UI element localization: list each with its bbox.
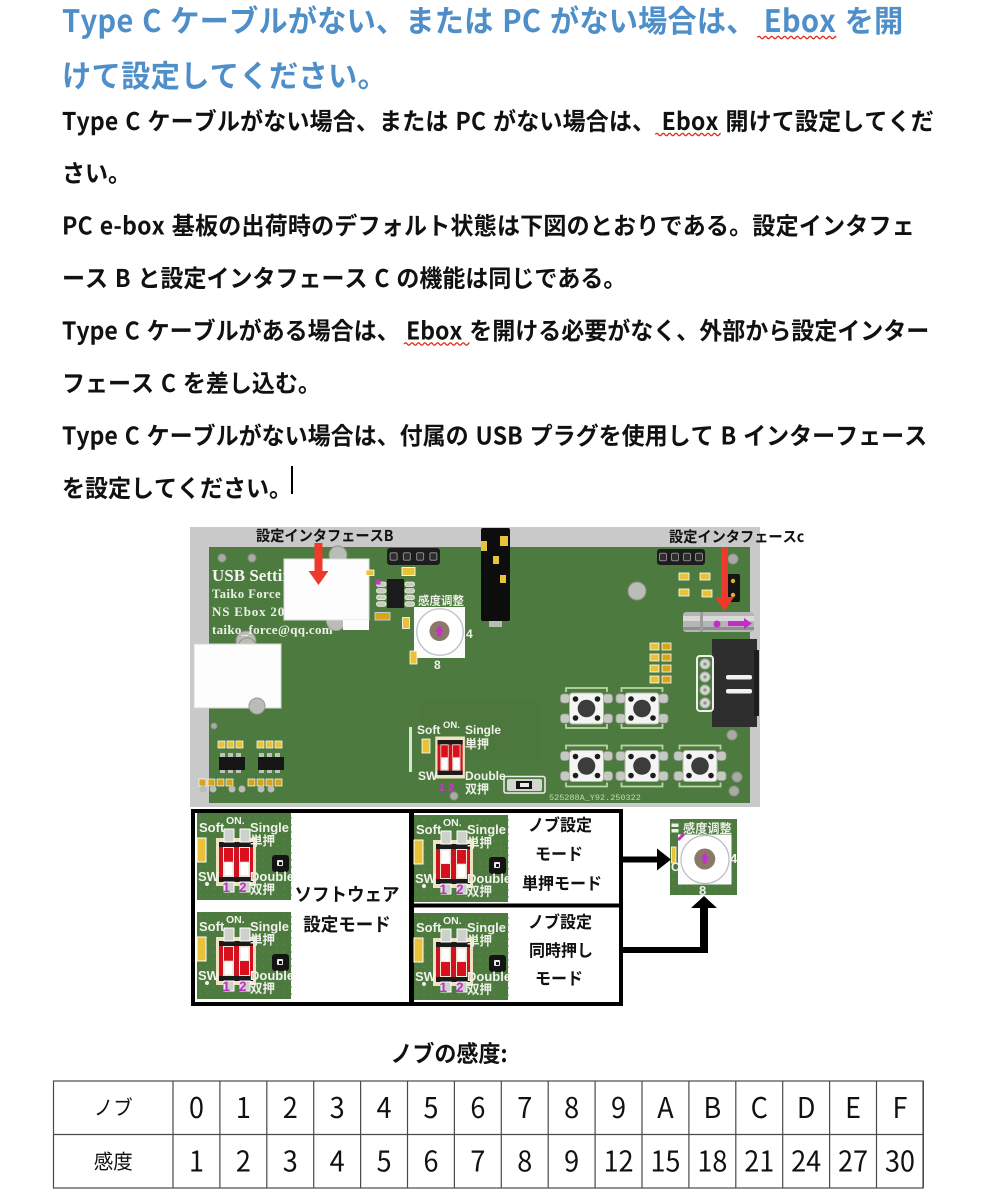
svg-text:ON.: ON. <box>226 815 245 827</box>
svg-text:SW: SW <box>198 869 220 884</box>
svg-text:Single: Single <box>467 920 506 935</box>
svg-text:Single: Single <box>250 820 289 835</box>
svg-text:Soft: Soft <box>416 920 442 935</box>
svg-text:Soft: Soft <box>199 919 225 934</box>
svg-text:Single: Single <box>250 919 289 934</box>
svg-text:C: C <box>671 860 680 874</box>
svg-text:Taiko Force: Taiko Force <box>212 587 281 601</box>
svg-text:8: 8 <box>434 658 441 672</box>
svg-text:ON.: ON. <box>443 720 460 731</box>
svg-text:2: 2 <box>239 880 247 895</box>
svg-text:2: 2 <box>456 980 464 995</box>
svg-text:Double: Double <box>467 969 511 984</box>
svg-text:ON.: ON. <box>443 915 462 927</box>
svg-text:Double: Double <box>250 968 294 983</box>
svg-text:Soft: Soft <box>199 820 225 835</box>
svg-text:1: 1 <box>440 980 448 995</box>
svg-text:ON.: ON. <box>443 817 462 829</box>
svg-text:SW: SW <box>418 769 438 783</box>
svg-text:SW: SW <box>415 871 437 886</box>
svg-text:SW: SW <box>415 969 437 984</box>
svg-text:Soft: Soft <box>416 822 442 837</box>
svg-text:Double: Double <box>467 871 511 886</box>
svg-text:8: 8 <box>699 883 706 898</box>
svg-text:4: 4 <box>730 851 738 866</box>
svg-text:Soft: Soft <box>417 723 440 737</box>
svg-text:ON.: ON. <box>226 914 245 926</box>
svg-text:Single: Single <box>465 723 501 737</box>
svg-text:USB Settin: USB Settin <box>212 566 292 585</box>
svg-text:Double: Double <box>465 769 506 783</box>
svg-text:SW: SW <box>198 968 220 983</box>
svg-text:1 2: 1 2 <box>439 782 454 794</box>
svg-text:Double: Double <box>250 869 294 884</box>
svg-text:taiko_force@qq.com: taiko_force@qq.com <box>212 622 333 637</box>
svg-text:2: 2 <box>239 979 247 994</box>
svg-text:1: 1 <box>223 880 231 895</box>
svg-text:2: 2 <box>456 882 464 897</box>
svg-text:4: 4 <box>466 627 473 641</box>
svg-text:525288A_Y92.250322: 525288A_Y92.250322 <box>549 793 641 803</box>
svg-text:1: 1 <box>440 882 448 897</box>
svg-text:1: 1 <box>223 979 231 994</box>
svg-text:Single: Single <box>467 822 506 837</box>
